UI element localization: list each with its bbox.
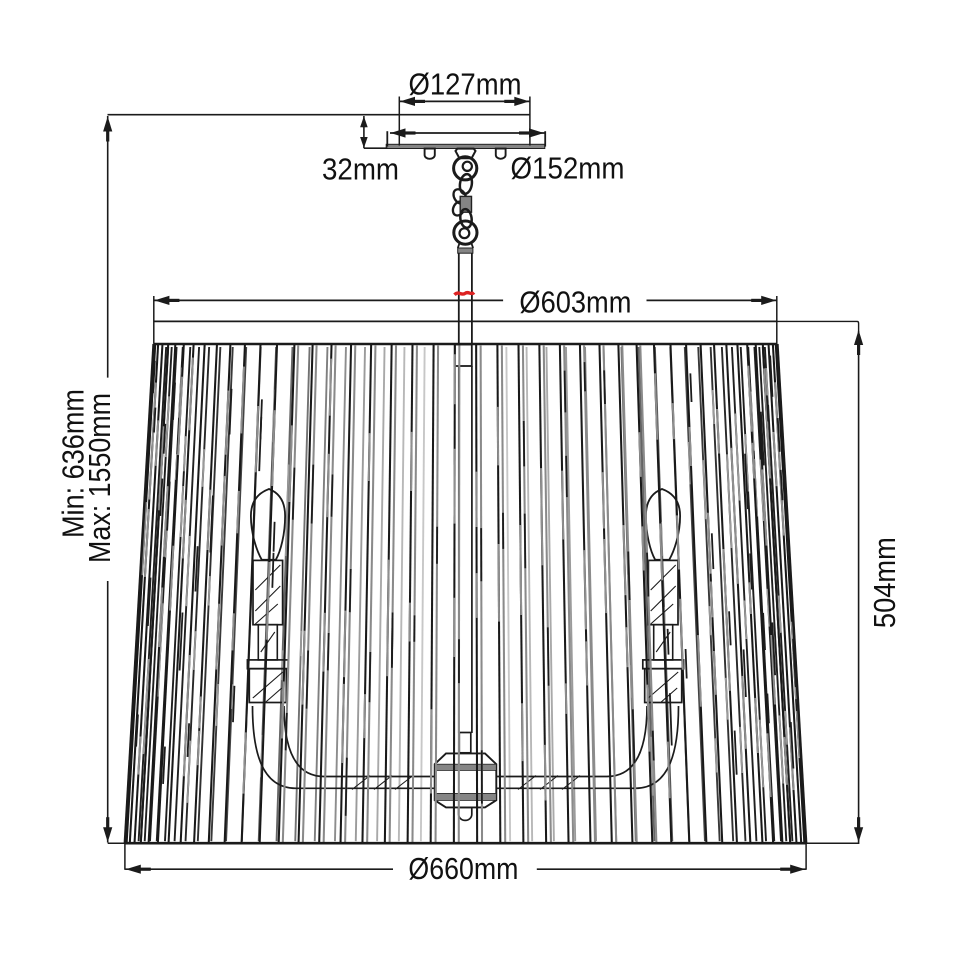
svg-text:Ø660mm: Ø660mm xyxy=(408,852,518,886)
svg-text:Ø603mm: Ø603mm xyxy=(519,286,631,320)
svg-text:Ø152mm: Ø152mm xyxy=(511,152,625,186)
svg-text:32mm: 32mm xyxy=(322,153,399,187)
svg-text:Ø127mm: Ø127mm xyxy=(409,68,522,102)
svg-text:504mm: 504mm xyxy=(868,537,902,628)
svg-text:Max: 1550mm: Max: 1550mm xyxy=(83,393,117,563)
